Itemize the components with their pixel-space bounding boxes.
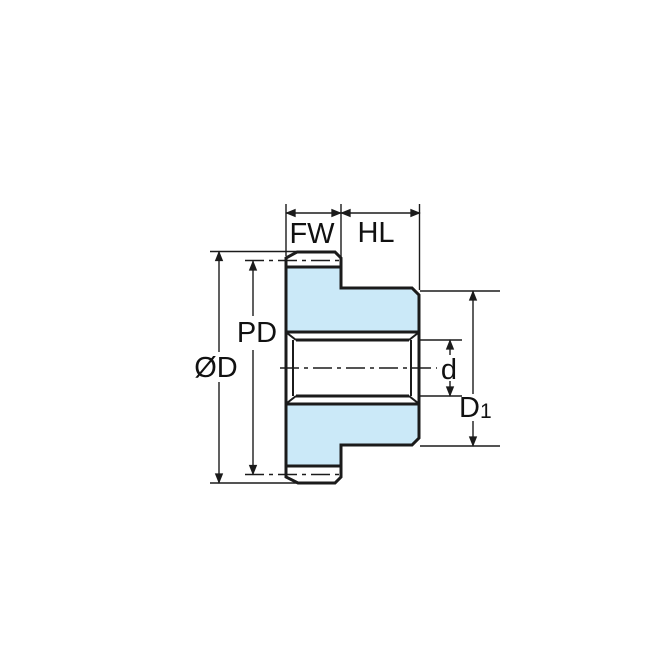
- hub-diameter-label-subscript: 1: [480, 400, 492, 423]
- bore-diameter-label: d: [441, 354, 457, 386]
- pitch-diameter-label: PD: [237, 317, 277, 349]
- gear-diagram-svg: FW HL PD ØD d D1: [0, 0, 670, 670]
- hub-diameter-label-base: D: [459, 392, 480, 424]
- gear-body-lower-section: [286, 404, 419, 466]
- outer-diameter-label: ØD: [194, 352, 238, 384]
- gear-body-upper-section: [286, 267, 419, 332]
- hub-diameter-label: D1: [459, 392, 492, 424]
- top-tooth-profile: [286, 252, 341, 267]
- face-width-label: FW: [289, 218, 335, 250]
- hub-length-label: HL: [357, 217, 394, 249]
- gear-technical-drawing: FW HL PD ØD d D1: [0, 0, 670, 670]
